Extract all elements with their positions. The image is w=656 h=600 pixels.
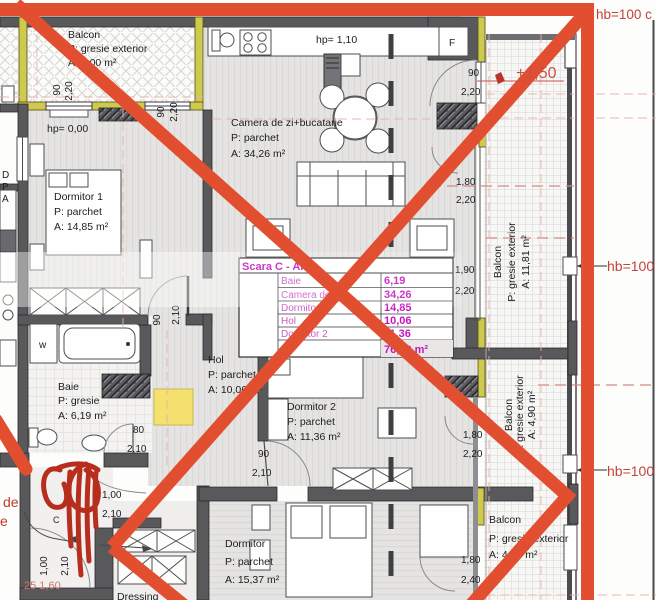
svg-text:P: parchet: P: parchet <box>287 416 335 428</box>
svg-text:2,10: 2,10 <box>127 444 147 455</box>
svg-text:1,80: 1,80 <box>463 430 483 441</box>
svg-text:Dormitor 2: Dormitor 2 <box>287 401 336 413</box>
svg-text:Balcon: Balcon <box>489 514 521 526</box>
svg-text:A: 14,85 m²: A: 14,85 m² <box>54 221 109 233</box>
svg-text:w: w <box>38 340 47 351</box>
svg-text:90: 90 <box>468 68 480 79</box>
svg-text:Dormitor 1: Dormitor 1 <box>54 191 103 203</box>
svg-text:F: F <box>449 38 455 49</box>
svg-text:2,20: 2,20 <box>64 81 75 101</box>
svg-text:P: parchet: P: parchet <box>231 132 279 144</box>
svg-text:2,10: 2,10 <box>60 556 71 576</box>
svg-text:hb=100: hb=100 <box>607 258 654 274</box>
svg-text:hp= 1,10: hp= 1,10 <box>316 34 357 46</box>
svg-text:D: D <box>2 170 9 181</box>
svg-text:2,10: 2,10 <box>102 509 122 520</box>
svg-text:Camera de zi+bucatarie: Camera de zi+bucatarie <box>231 117 343 129</box>
svg-text:P: parchet: P: parchet <box>225 556 273 568</box>
svg-text:Hol: Hol <box>208 354 224 366</box>
svg-text:2,10: 2,10 <box>171 305 182 325</box>
svg-text:hb=100: hb=100 <box>607 463 654 479</box>
svg-text:e: e <box>0 513 8 529</box>
svg-text:2,10: 2,10 <box>252 468 272 479</box>
svg-text:Baie: Baie <box>58 381 79 393</box>
svg-text:90: 90 <box>52 84 63 96</box>
svg-text:P: gresie: P: gresie <box>58 395 100 407</box>
svg-text:+1,50: +1,50 <box>516 65 557 82</box>
svg-text:2,20: 2,20 <box>463 449 483 460</box>
svg-text:Hol: Hol <box>281 316 296 327</box>
svg-text:Balcon: Balcon <box>492 246 504 278</box>
svg-text:Dormitor: Dormitor <box>225 538 266 550</box>
svg-text:P: parchet: P: parchet <box>54 206 102 218</box>
svg-text:P: parchet: P: parchet <box>208 369 256 381</box>
svg-text:A: A <box>2 194 9 205</box>
svg-text:A: 4,90 m²: A: 4,90 m² <box>526 390 538 439</box>
svg-text:2,20: 2,20 <box>461 87 481 98</box>
svg-text:1,00: 1,00 <box>39 556 50 576</box>
svg-text:1,00: 1,00 <box>102 490 122 501</box>
svg-text:90: 90 <box>152 314 163 326</box>
svg-text:25 1,60: 25 1,60 <box>24 580 61 592</box>
svg-text:de: de <box>3 494 19 510</box>
svg-text:A: 6,19 m²: A: 6,19 m² <box>58 410 107 422</box>
svg-text:2,20: 2,20 <box>169 102 180 122</box>
svg-text:90: 90 <box>156 106 167 118</box>
svg-text:P: P <box>2 182 9 193</box>
svg-text:2,20: 2,20 <box>456 195 476 206</box>
svg-text:Balcon: Balcon <box>68 29 100 41</box>
svg-text:hb=100 c: hb=100 c <box>596 7 652 22</box>
svg-text:Dressing: Dressing <box>117 591 159 600</box>
svg-text:A: 11,36 m²: A: 11,36 m² <box>287 431 341 443</box>
svg-text:P: gresie exterior: P: gresie exterior <box>506 222 518 302</box>
svg-text:A: 11,81 m²: A: 11,81 m² <box>520 235 532 289</box>
svg-text:1,80: 1,80 <box>456 177 476 188</box>
svg-text:2,40: 2,40 <box>461 575 481 586</box>
svg-text:A: 34,26 m²: A: 34,26 m² <box>231 148 286 160</box>
svg-text:10,06: 10,06 <box>384 315 412 327</box>
svg-text:90: 90 <box>258 449 270 460</box>
svg-text:1,80: 1,80 <box>461 555 481 566</box>
svg-text:A: 15,37 m²: A: 15,37 m² <box>225 574 280 586</box>
svg-text:80: 80 <box>133 425 145 436</box>
svg-text:hp= 0,00: hp= 0,00 <box>47 123 88 135</box>
svg-text:C: C <box>53 515 60 525</box>
